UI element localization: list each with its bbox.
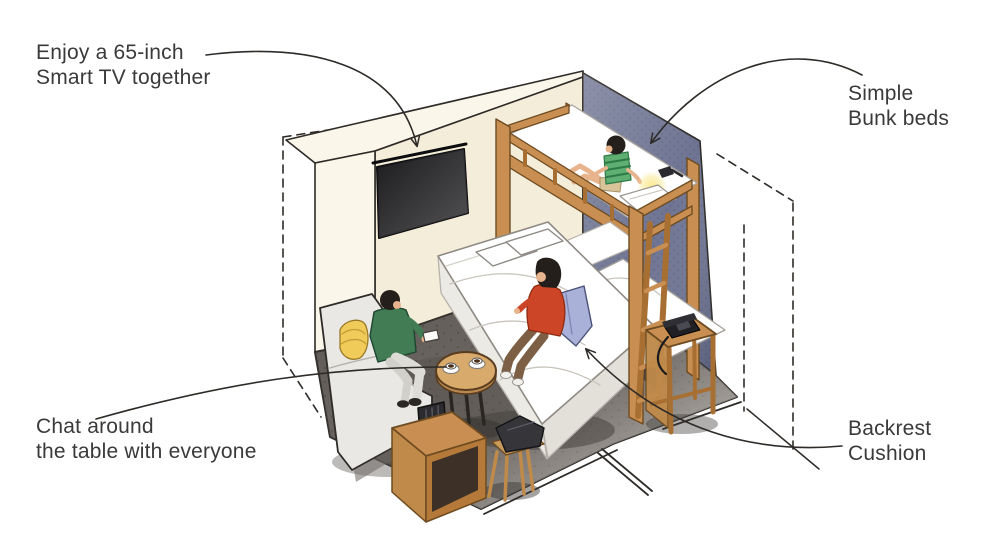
red-shirt bbox=[527, 285, 565, 336]
label-backrest-cushion: Backrest Cushion bbox=[848, 416, 931, 466]
label-smart-tv-line1: Enjoy a 65-inch bbox=[36, 40, 211, 65]
label-smart-tv-line2: Smart TV together bbox=[36, 65, 211, 90]
label-chat-table-line2: the table with everyone bbox=[36, 439, 257, 464]
room-diagram-page: Enjoy a 65-inch Smart TV together Simple… bbox=[0, 0, 1000, 556]
label-bunk-beds-line1: Simple bbox=[848, 81, 949, 106]
label-bunk-beds: Simple Bunk beds bbox=[848, 81, 949, 131]
label-chat-table-line1: Chat around bbox=[36, 414, 257, 439]
label-chat-table: Chat around the table with everyone bbox=[36, 414, 257, 464]
yellow-pillow bbox=[340, 320, 368, 359]
label-backrest-cushion-line1: Backrest bbox=[848, 416, 931, 441]
cutaway-outline-right bbox=[717, 154, 793, 449]
label-backrest-cushion-line2: Cushion bbox=[848, 441, 931, 466]
label-smart-tv: Enjoy a 65-inch Smart TV together bbox=[36, 40, 211, 90]
label-bunk-beds-line2: Bunk beds bbox=[848, 106, 949, 131]
